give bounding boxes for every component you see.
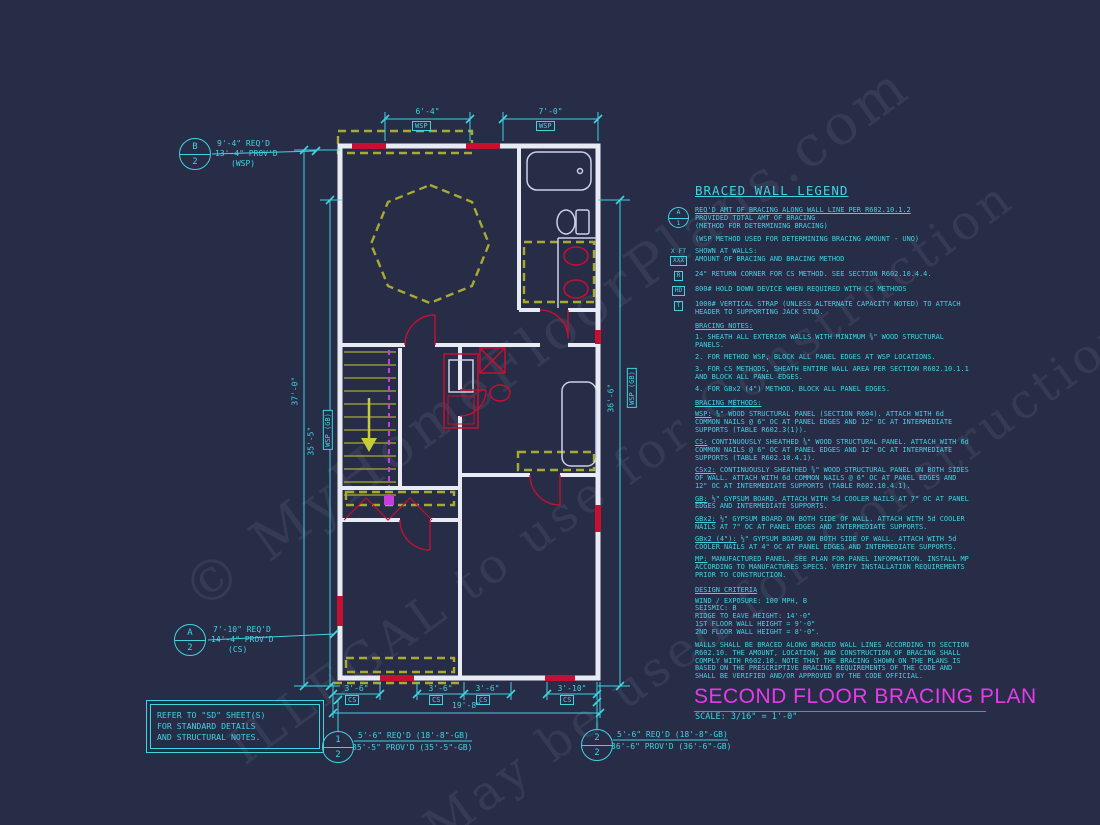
legend-text: AMOUNT OF BRACING AND BRACING METHOD bbox=[695, 256, 969, 264]
legend-note: 1. SHEATH ALL EXTERIOR WALLS WITH MINIMU… bbox=[695, 334, 969, 350]
legend-text: 24" RETURN CORNER FOR CS METHOD. SEE SEC… bbox=[695, 271, 969, 279]
marker-number: 1 bbox=[323, 733, 353, 748]
dim-label: 37'-0" bbox=[290, 360, 299, 406]
scale-note: SCALE: 3/16" = 1'-0" bbox=[695, 712, 797, 722]
marker-number: 2 bbox=[180, 155, 210, 169]
reference-note-box: REFER TO "SD" SHEET(S) FOR STANDARD DETA… bbox=[150, 704, 320, 749]
vertical-strap-symbol: T bbox=[674, 301, 683, 311]
marker-note: 9'-4" REQ'D bbox=[217, 139, 270, 148]
legend-text: 800# HOLD DOWN DEVICE WHEN REQUIRED WITH… bbox=[695, 286, 969, 294]
legend-method: CSx2: CONTINUOUSLY SHEATHED ⅜" WOOD STRU… bbox=[695, 467, 969, 491]
marker-note: 5'-6" REQ'D (18'-8"-GB) bbox=[617, 730, 728, 739]
legend-entry-hold-down: HD 800# HOLD DOWN DEVICE WHEN REQUIRED W… bbox=[667, 286, 969, 296]
braced-panel-outlines bbox=[334, 131, 594, 683]
legend-note: 4. FOR GBx2 (4") METHOD, BLOCK ALL PANEL… bbox=[695, 386, 969, 394]
marker-number: 2 bbox=[582, 731, 612, 746]
legend-method: GB: ½" GYPSUM BOARD. ATTACH WITH 5d COOL… bbox=[695, 496, 969, 512]
marker-letter: B bbox=[180, 140, 210, 155]
dim-label: 35'-5" bbox=[306, 410, 315, 456]
marker-number: 2 bbox=[323, 748, 353, 762]
marker-note: 5'-6" REQ'D (18'-8"-GB) bbox=[358, 731, 469, 740]
marker-number: 2 bbox=[582, 746, 612, 760]
return-corner-symbol: R bbox=[674, 271, 683, 281]
dim-method-tag: WSP bbox=[412, 121, 431, 131]
wall-line-marker-1: 1 2 bbox=[322, 731, 354, 763]
wall-line-marker-2: 2 2 bbox=[581, 729, 613, 761]
hold-down-symbol: HD bbox=[672, 286, 685, 296]
dim-label: 36'-6" bbox=[606, 367, 615, 413]
dim-label: 3'-6" bbox=[417, 684, 464, 693]
dimension-lines bbox=[208, 112, 728, 741]
dim-label: 7'-0" bbox=[503, 107, 598, 116]
legend-section-title: DESIGN CRITERIA bbox=[695, 587, 969, 595]
marker-note: 35'-5" PROV'D (35'-5"-GB) bbox=[352, 743, 472, 752]
legend-note: 2. FOR METHOD WSP, BLOCK ALL PANEL EDGES… bbox=[695, 354, 969, 362]
legend-text: (WSP METHOD USED FOR DETERMINING BRACING… bbox=[695, 236, 969, 244]
wall-line-marker-a2: A 2 bbox=[174, 624, 206, 656]
marker-note: (WSP) bbox=[231, 159, 255, 168]
drawing-sheet: © MyHomeFloorPlans.com ILLEGAL to use fo… bbox=[0, 0, 1100, 825]
legend-method: CS: CONTINUOUSLY SHEATHED ⅜" WOOD STRUCT… bbox=[695, 439, 969, 463]
legend-entry-return-corner: R 24" RETURN CORNER FOR CS METHOD. SEE S… bbox=[667, 271, 969, 281]
marker-number: 2 bbox=[175, 641, 205, 655]
wall-line-marker-b2: B 2 bbox=[179, 138, 211, 170]
legend-title: BRACED WALL LEGEND bbox=[695, 184, 969, 198]
dim-label: 6'-4" bbox=[385, 107, 470, 116]
dim-label: 3'-6" bbox=[333, 684, 380, 693]
reference-note-line: REFER TO "SD" SHEET(S) bbox=[157, 710, 313, 721]
legend-method: GBx2: ½" GYPSUM BOARD ON BOTH SIDE OF WA… bbox=[695, 516, 969, 532]
legend-text: (METHOD FOR DETERMINING BRACING) bbox=[695, 223, 969, 231]
dim-method-tag: WSP bbox=[536, 121, 555, 131]
dim-label-total: 19'-8" bbox=[333, 701, 600, 710]
legend-method: MP: MANUFACTURED PANEL. SEE PLAN FOR PAN… bbox=[695, 556, 969, 580]
legend-section-title: BRACING NOTES: bbox=[695, 323, 969, 331]
reference-note-line: FOR STANDARD DETAILS bbox=[157, 721, 313, 732]
dim-label: 3'-10" bbox=[547, 684, 597, 693]
legend-entry-strap: T 1000# VERTICAL STRAP (UNLESS ALTERNATE… bbox=[667, 301, 969, 317]
legend-text: 1000# VERTICAL STRAP (UNLESS ALTERNATE C… bbox=[695, 301, 969, 317]
dim-method-tag: WSP (GB) bbox=[627, 368, 637, 408]
bracing-amount-symbol: X FT XXX bbox=[670, 248, 686, 266]
marker-note: 36'-6" PROV'D (36'-6"-GB) bbox=[611, 742, 731, 751]
legend-method: GBx2 (4"): ½" GYPSUM BOARD ON BOTH SIDE … bbox=[695, 536, 969, 552]
legend-section-title: BRACING METHODS: bbox=[695, 400, 969, 408]
marker-note: 7'-10" REQ'D bbox=[213, 625, 271, 634]
legend-note: 3. FOR CS METHODS, SHEATH ENTIRE WALL AR… bbox=[695, 366, 969, 382]
marker-note: 14'-4" PROV'D bbox=[211, 635, 274, 644]
stair-down-arrow bbox=[361, 398, 377, 452]
legend-closing-note: WALLS SHALL BE BRACED ALONG BRACED WALL … bbox=[695, 642, 969, 681]
marker-note: 13'-4" PROV'D bbox=[215, 149, 278, 158]
legend-entry-marker: A1 REQ'D AMT OF BRACING ALONG WALL LINE … bbox=[667, 207, 969, 231]
design-criteria-line: 2ND FLOOR WALL HEIGHT = 8'-0". bbox=[695, 629, 969, 637]
braced-wall-legend: BRACED WALL LEGEND A1 REQ'D AMT OF BRACI… bbox=[667, 184, 969, 685]
page-title: SECOND FLOOR BRACING PLAN bbox=[694, 685, 986, 712]
dim-label: 3'-6" bbox=[464, 684, 511, 693]
marker-letter: A bbox=[175, 626, 205, 641]
reference-note-line: AND STRUCTURAL NOTES. bbox=[157, 732, 313, 743]
legend-entry-xft: X FT XXX SHOWN AT WALLS: AMOUNT OF BRACI… bbox=[667, 248, 969, 266]
legend-method: WSP: ⅜" WOOD STRUCTURAL PANEL (SECTION R… bbox=[695, 411, 969, 435]
dim-method-tag: WSP (GB) bbox=[323, 410, 333, 450]
marker-note: (CS) bbox=[228, 645, 247, 654]
wall-line-marker-symbol: A1 bbox=[668, 207, 689, 228]
